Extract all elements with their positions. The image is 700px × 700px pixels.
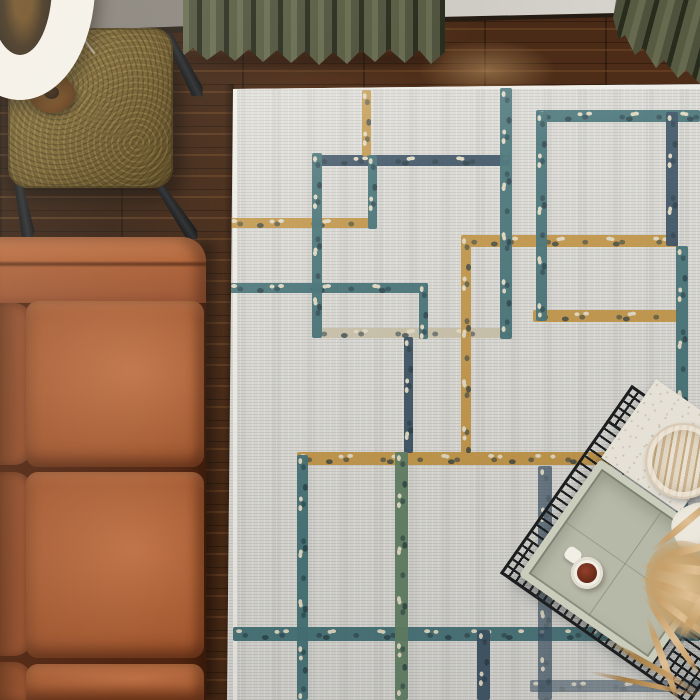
living-room-overhead-photo xyxy=(0,0,700,700)
sofa-seat-cushion xyxy=(26,664,204,700)
sofa-armrest xyxy=(0,237,206,303)
coffee-liquid xyxy=(577,563,597,583)
sofa-seat-cushion xyxy=(26,301,204,467)
sofa-seat-cushion xyxy=(26,472,204,658)
